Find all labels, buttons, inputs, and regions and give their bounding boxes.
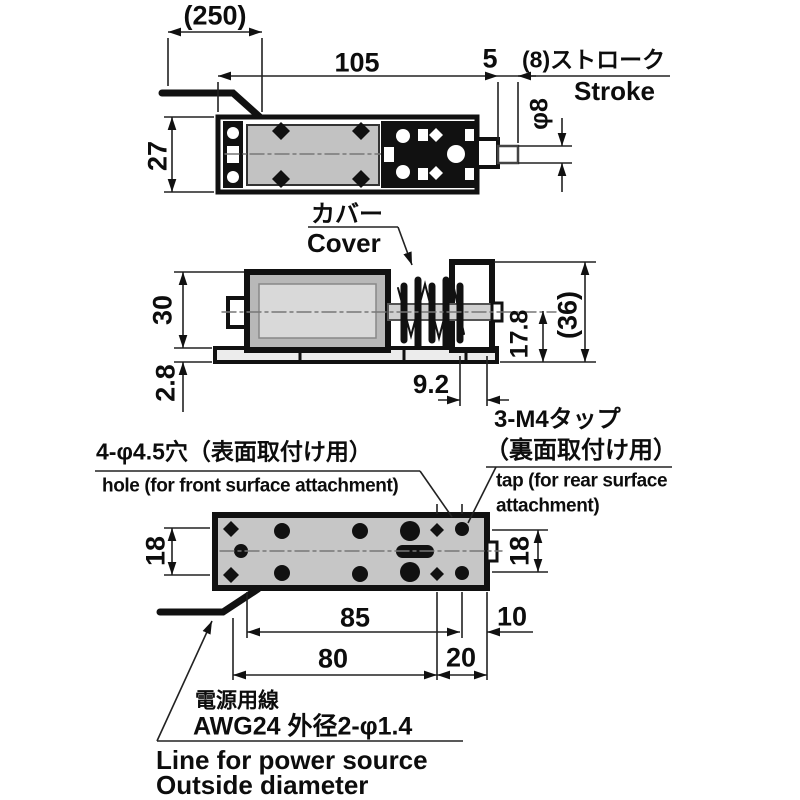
note-hole-en: hole (for front surface attachment) <box>102 477 398 496</box>
label-stroke-jp: (8)ストローク <box>522 49 665 72</box>
note-power-spec: AWG24 外径2-φ1.4 <box>193 715 412 740</box>
dim-row-spacing-left: 18 <box>143 536 170 566</box>
dim-cable-length: (250) <box>183 3 246 30</box>
note-tap-jp-line1: 3-M4タップ <box>494 408 621 432</box>
dim-body-width: 27 <box>145 141 172 171</box>
dim-body-height: 30 <box>150 295 177 325</box>
note-tap-en-line2: attachment) <box>496 497 599 516</box>
dim-body-length: 105 <box>334 50 379 77</box>
label-cover-en: Cover <box>307 230 381 256</box>
dim-plunger-step: 5 <box>482 46 497 73</box>
bottom-view-lead-wire <box>160 589 258 612</box>
dim-mount-span: 80 <box>318 646 348 673</box>
dim-overall-height: (36) <box>555 291 582 339</box>
note-tap-en-line1: tap (for rear surface <box>496 472 667 491</box>
dim-center-height: 17.8 <box>508 310 533 359</box>
label-stroke-en: Stroke <box>574 78 655 104</box>
dim-tap-offset: 10 <box>497 604 527 631</box>
drawing-linework <box>0 0 800 800</box>
top-view <box>162 93 518 192</box>
dim-shaft-clearance: 9.2 <box>413 371 449 397</box>
dim-tap-span: 20 <box>446 645 476 672</box>
note-power-jp: 電源用線 <box>195 691 279 712</box>
dim-hole-span: 85 <box>340 605 370 632</box>
note-power-en-line2: Outside diameter <box>156 772 368 798</box>
dim-row-spacing-right: 18 <box>507 536 534 566</box>
technical-drawing-page: (250) 105 5 (8)ストローク Stroke φ8 27 カバー Co… <box>0 0 800 800</box>
bottom-view <box>160 515 502 612</box>
note-tap-jp-line2: （裏面取付け用） <box>485 439 677 463</box>
dim-base-thickness: 2.8 <box>153 364 180 402</box>
label-cover-jp: カバー <box>311 203 383 227</box>
note-hole-jp: 4-φ4.5穴（表面取付け用） <box>96 441 372 464</box>
dim-shaft-diameter: φ8 <box>528 98 553 130</box>
